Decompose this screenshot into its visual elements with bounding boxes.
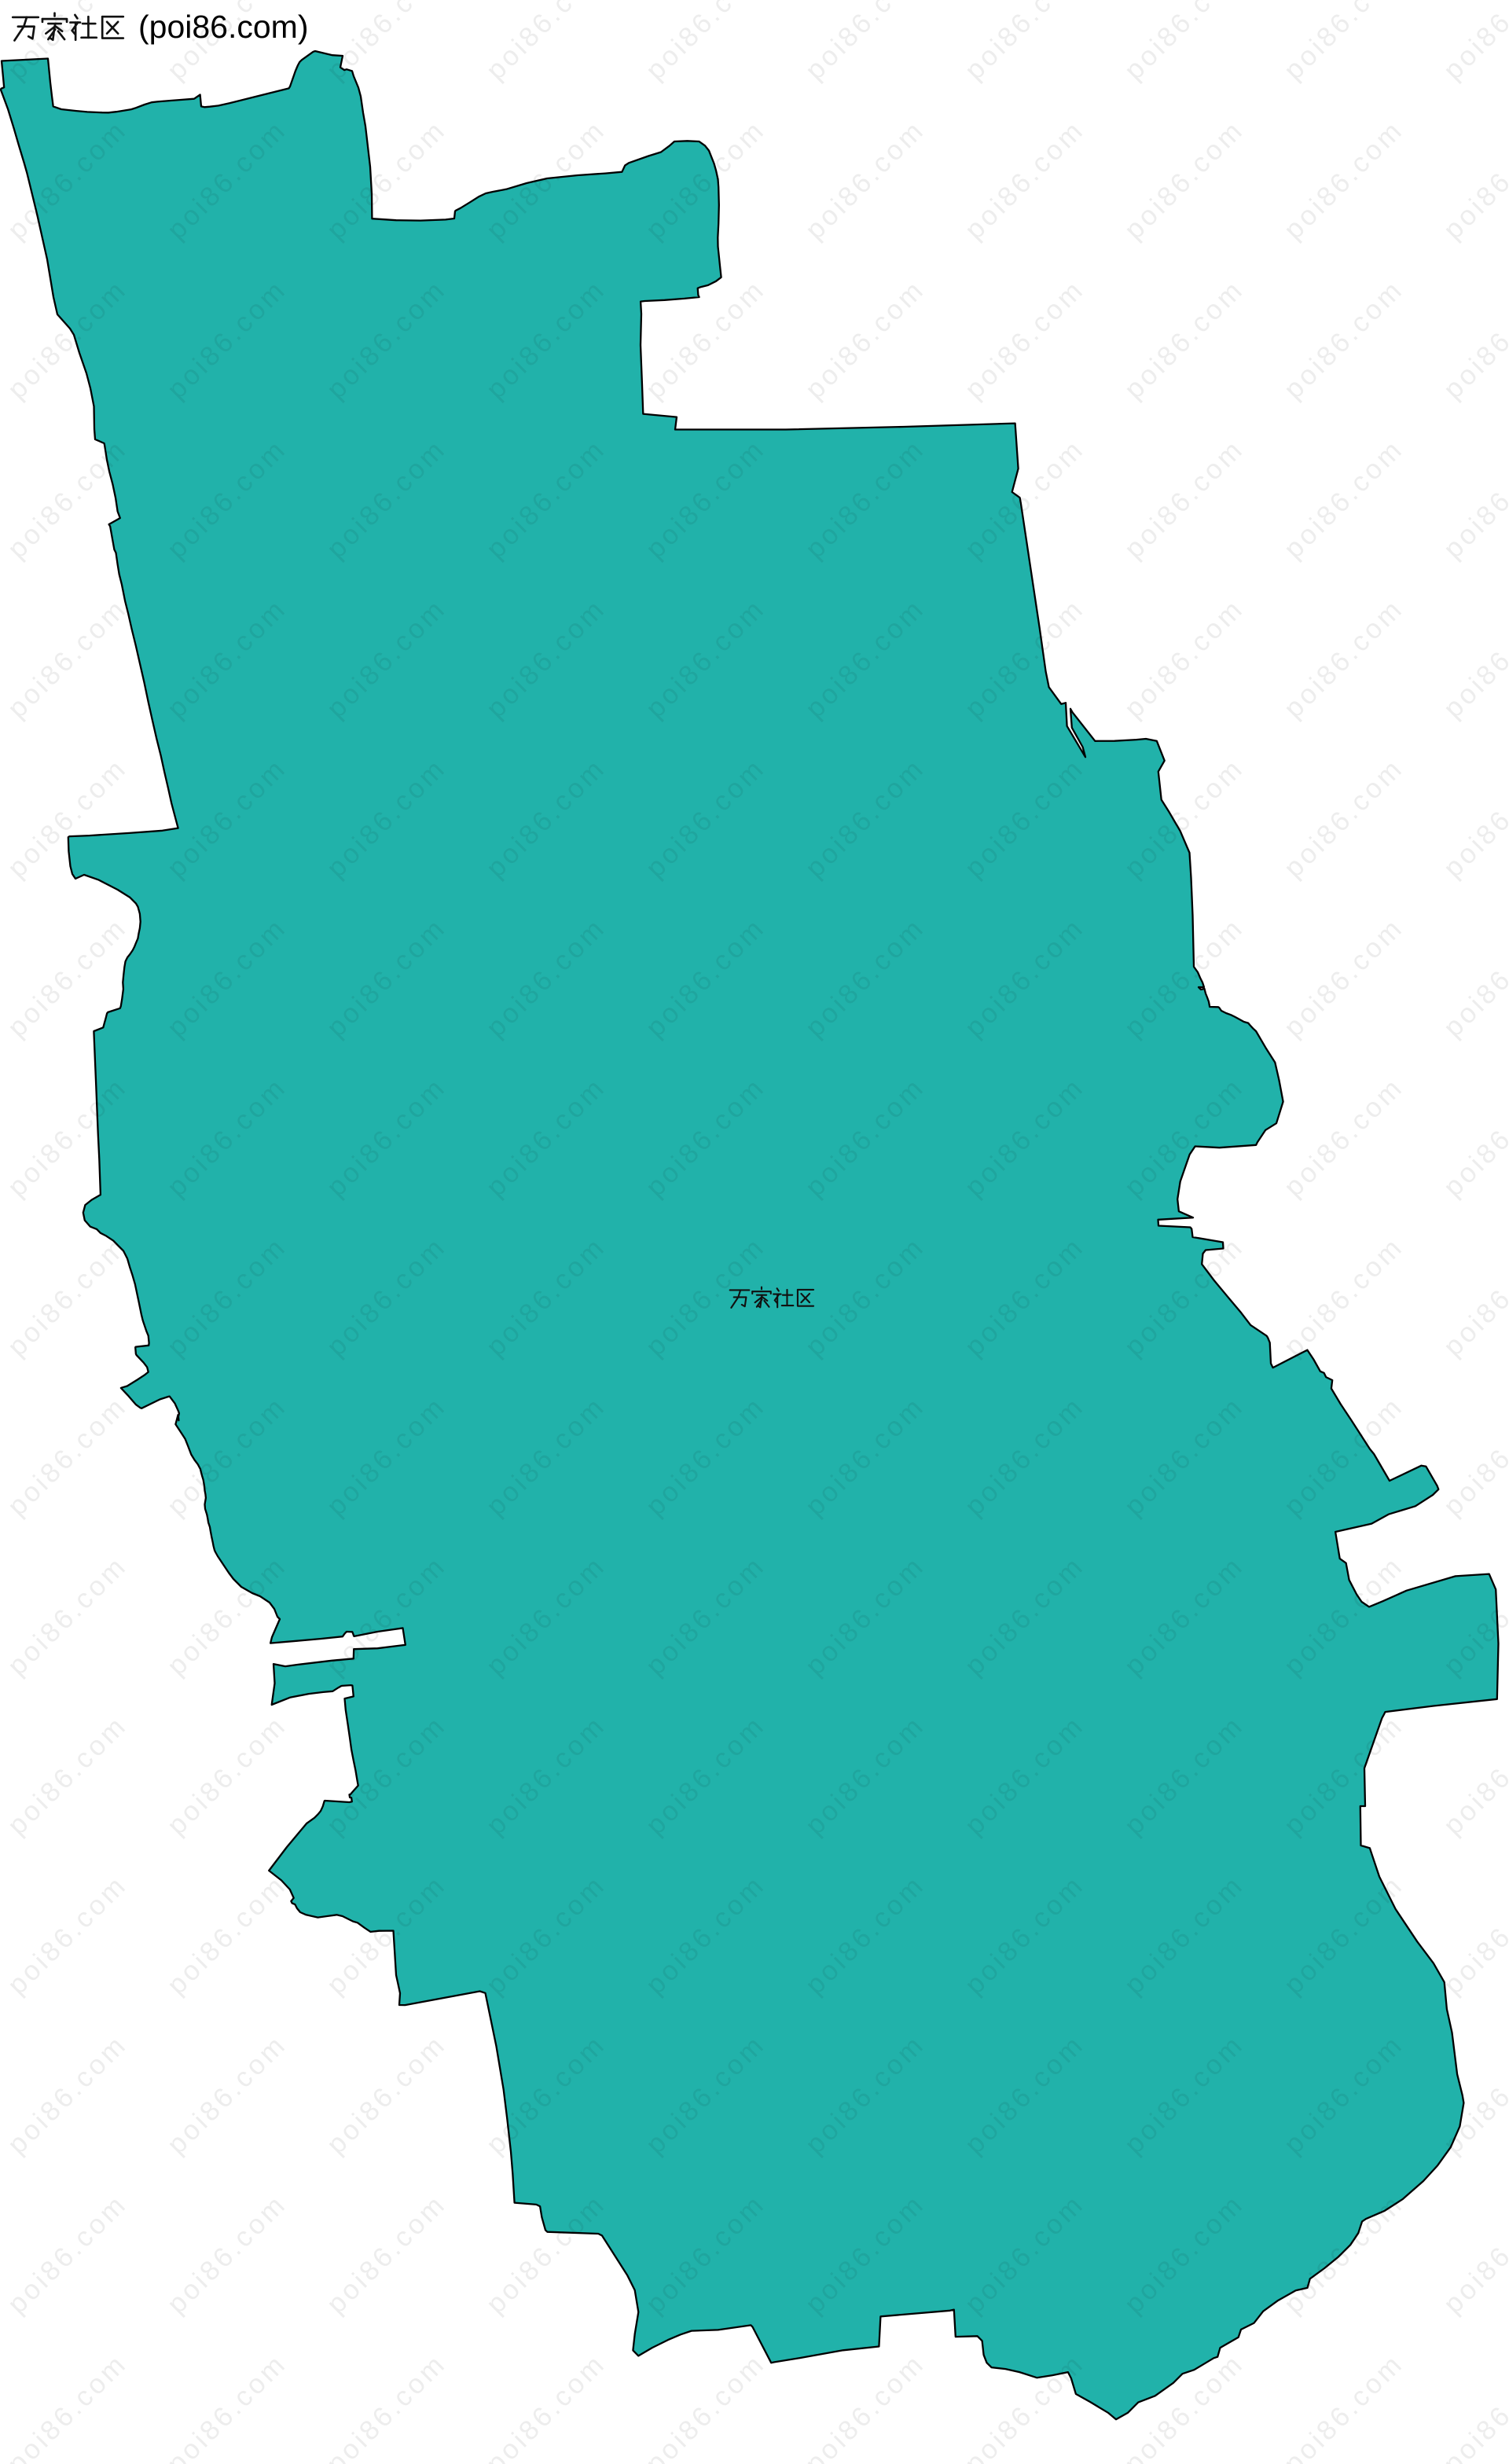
- svg-text:(poi86.com): (poi86.com): [138, 9, 308, 45]
